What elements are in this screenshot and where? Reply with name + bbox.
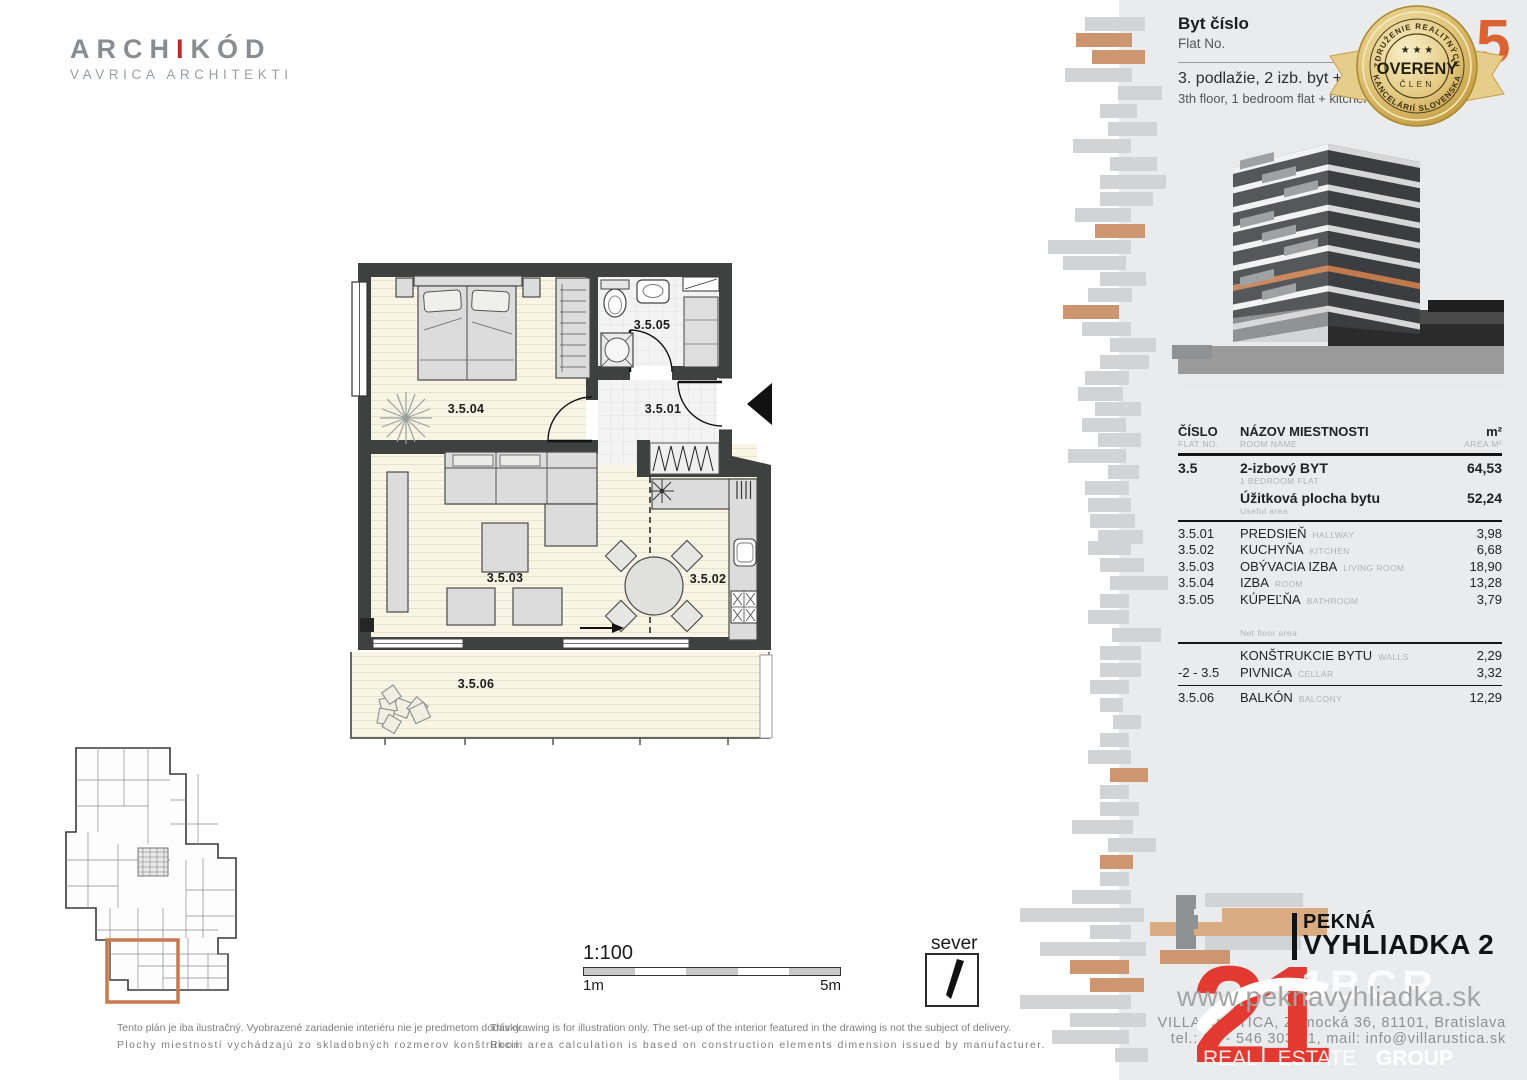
logo-part2: KÓD — [191, 34, 272, 64]
real-label: REAL — [1203, 1047, 1258, 1071]
room-name-sk: PREDSIEŇ — [1240, 526, 1306, 541]
room-name-sk: OBÝVACIA IZBA — [1240, 559, 1337, 574]
room-no: 3.5.05 — [1178, 592, 1240, 607]
room-label-kuchyna: 3.5.02 — [690, 572, 727, 586]
net-floor-row: Net floor area — [1178, 628, 1502, 638]
decorative-bar — [1063, 305, 1119, 319]
room-name-en: BALCONY — [1299, 694, 1342, 704]
disclaimer-en: This drawing is for illustration only. T… — [490, 1020, 1046, 1054]
badge-member-text: ČLEN — [1400, 79, 1435, 89]
room-name-sk: KUCHYŇA — [1240, 542, 1304, 557]
table-row: KONŠTRUKCIE BYTUWALLS 2,29 — [1178, 648, 1502, 664]
table-row: 3.5.03 OBÝVACIA IZBALIVING ROOM 18,90 — [1178, 559, 1502, 575]
table-rule — [1178, 453, 1502, 456]
useful-area-en: Useful area — [1240, 506, 1442, 516]
building-render-image — [1178, 128, 1504, 386]
table-row: 3.5.06 BALKÓNBALCONY 12,29 — [1178, 690, 1502, 706]
table-header-sub-row: FLAT NO. ROOM NAME AREA M² — [1178, 439, 1502, 449]
table-rule — [1178, 642, 1502, 645]
verified-member-badge: ZDRUŽENIE REALITNÝCH KANCELÁRIÍ SLOVENSK… — [1322, 2, 1512, 137]
scale-start-label: 1m — [583, 977, 604, 994]
summary-sub-row: 1 BEDROOM FLAT — [1178, 476, 1502, 486]
floor-plan — [348, 255, 780, 755]
useful-area-row: Úžitková plocha bytu 52,24 — [1178, 490, 1502, 506]
useful-area-value: 52,24 — [1442, 490, 1502, 506]
col-area: AREA M² — [1442, 439, 1502, 449]
room-name-en: BATHROOM — [1307, 596, 1359, 606]
north-needle-icon — [927, 955, 977, 1005]
useful-area-sub-row: Useful area — [1178, 506, 1502, 516]
badge-seal-icon: ZDRUŽENIE REALITNÝCH KANCELÁRIÍ SLOVENSK… — [1322, 2, 1512, 132]
room-no: 3.5.03 — [1178, 559, 1240, 574]
decorative-bar — [1078, 387, 1123, 401]
table-row: 3.5.04 IZBAROOM 13,28 — [1178, 575, 1502, 591]
room-area: 3,98 — [1442, 526, 1502, 541]
page: ARCHIKÓD VAVRICA ARCHITEKTI Byt číslo Fl… — [0, 0, 1527, 1080]
table-rule-thin — [1178, 685, 1502, 686]
col-flat-no: FLAT NO. — [1178, 439, 1240, 449]
key-plan-drawing — [58, 740, 243, 1008]
room-name-en: WALLS — [1378, 652, 1409, 662]
room-no: 3.5.06 — [1178, 690, 1240, 705]
badge-stars: ★ ★ ★ — [1401, 45, 1433, 56]
table-row: 3.5.05 KÚPEĽŇABATHROOM 3,79 — [1178, 592, 1502, 608]
room-name-sk: KONŠTRUKCIE BYTU — [1240, 648, 1372, 663]
disclaimer-sk: Tento plán je iba ilustračný. Vyobrazené… — [117, 1020, 524, 1054]
room-area: 13,28 — [1442, 575, 1502, 590]
room-name-sk: KÚPEĽŇA — [1240, 592, 1301, 607]
room-name-sk: IZBA — [1240, 575, 1269, 590]
area-table: ČÍSLO NÁZOV MIESTNOSTI m² FLAT NO. ROOM … — [1178, 424, 1502, 707]
logo-part1: ARCH — [70, 34, 176, 64]
summary-name: 2-izbový BYT — [1240, 460, 1442, 476]
estate-label: ESTATE — [1278, 1047, 1357, 1071]
room-name-en: ROOM — [1275, 579, 1303, 589]
room-label-balkon: 3.5.06 — [458, 677, 495, 691]
scale-end-label: 5m — [820, 977, 841, 994]
summary-area: 64,53 — [1442, 460, 1502, 476]
room-area: 2,29 — [1442, 648, 1502, 663]
net-floor-label: Net floor area — [1240, 628, 1442, 638]
decorative-bar — [1052, 1030, 1129, 1044]
room-no: 3.5.04 — [1178, 575, 1240, 590]
website-url: www.peknavyhliadka.sk — [1177, 981, 1481, 1013]
decorative-bar — [1068, 449, 1126, 463]
disclaimer-en-line1: This drawing is for illustration only. T… — [490, 1020, 1046, 1037]
key-plan — [58, 740, 243, 1013]
room-area: 6,68 — [1442, 542, 1502, 557]
room-label-obyvacia-izba: 3.5.03 — [487, 571, 524, 585]
summary-name-en: 1 BEDROOM FLAT — [1240, 476, 1442, 486]
room-area: 3,32 — [1442, 665, 1502, 680]
decorative-bar — [1063, 256, 1126, 270]
architect-logo-subtitle: VAVRICA ARCHITEKTI — [70, 67, 293, 82]
useful-area-label: Úžitková plocha bytu — [1240, 490, 1442, 506]
table-row: -2 - 3.5 PIVNICACELLAR 3,32 — [1178, 665, 1502, 681]
room-no: -2 - 3.5 — [1178, 665, 1240, 680]
floor-plan-drawing — [348, 255, 780, 750]
summary-row: 3.5 2-izbový BYT 64,53 — [1178, 460, 1502, 476]
project-logo-bar — [1292, 913, 1297, 960]
room-name-en: KITCHEN — [1310, 546, 1350, 556]
room-label-kupelna: 3.5.05 — [634, 318, 671, 332]
architect-logo: ARCHIKÓD VAVRICA ARCHITEKTI — [70, 34, 293, 82]
architect-logo-title: ARCHIKÓD — [70, 34, 293, 65]
scale-ratio: 1:100 — [583, 942, 841, 965]
room-area: 18,90 — [1442, 559, 1502, 574]
real-estate-group: REAL ESTATE GROUP — [1203, 1047, 1453, 1071]
room-name-sk: PIVNICA — [1240, 665, 1292, 680]
room-name-en: CELLAR — [1298, 669, 1333, 679]
disclaimer-sk-line1: Tento plán je iba ilustračný. Vyobrazené… — [117, 1020, 524, 1037]
logo-accent-letter: I — [176, 34, 191, 64]
room-name-en: HALLWAY — [1312, 530, 1354, 540]
room-label-izba: 3.5.04 — [448, 402, 485, 416]
summary-no: 3.5 — [1178, 460, 1240, 476]
col-cislo: ČÍSLO — [1178, 424, 1240, 439]
badge-center-text: OVERENÝ — [1377, 59, 1458, 78]
table-row: 3.5.01 PREDSIEŇHALLWAY 3,98 — [1178, 526, 1502, 542]
col-m2: m² — [1442, 424, 1502, 439]
room-label-predsien: 3.5.01 — [645, 402, 682, 416]
group-label: GROUP — [1376, 1047, 1453, 1071]
room-area: 12,29 — [1442, 690, 1502, 705]
scale-bar-segments — [583, 967, 841, 976]
room-name-sk: BALKÓN — [1240, 690, 1293, 705]
north-indicator — [925, 953, 979, 1007]
building-render — [1178, 128, 1504, 391]
north-label: sever — [931, 933, 977, 955]
disclaimer-sk-line2: Plochy miestností vychádzajú zo skladobn… — [117, 1037, 524, 1054]
disclaimer-en-line2: Room area calculation is based on constr… — [490, 1037, 1046, 1054]
room-no: 3.5.01 — [1178, 526, 1240, 541]
col-nazov: NÁZOV MIESTNOSTI — [1240, 424, 1442, 439]
table-rule — [1178, 520, 1502, 523]
decorative-bar — [1020, 995, 1131, 1009]
col-room-name: ROOM NAME — [1240, 439, 1442, 449]
room-name-en: LIVING ROOM — [1343, 563, 1404, 573]
table-row: 3.5.02 KUCHYŇAKITCHEN 6,68 — [1178, 542, 1502, 558]
scale-bar: 1:100 1m 5m — [583, 942, 841, 994]
table-header-row: ČÍSLO NÁZOV MIESTNOSTI m² — [1178, 424, 1502, 439]
room-area: 3,79 — [1442, 592, 1502, 607]
room-no: 3.5.02 — [1178, 542, 1240, 557]
project-name-line2: VYHLIADKA 2 — [1303, 929, 1494, 961]
